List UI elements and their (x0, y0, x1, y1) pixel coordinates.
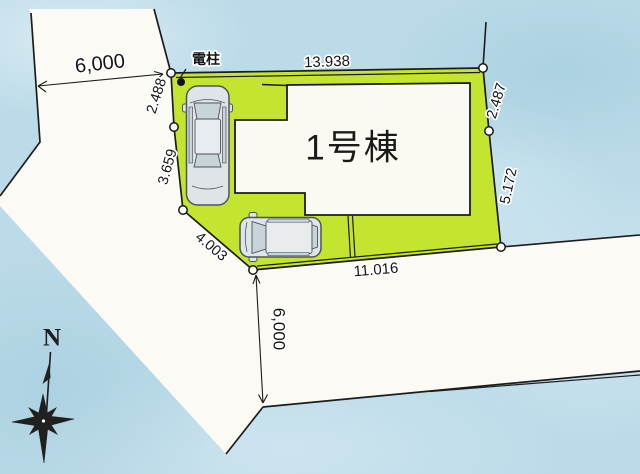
compass-center-dot (42, 419, 45, 422)
compass: N (12, 325, 74, 464)
car-wagon (240, 213, 321, 262)
vertex-marker (479, 64, 487, 72)
sedan-roof (195, 119, 221, 154)
wagon-rear-window (312, 225, 318, 249)
sedan-windshield (194, 103, 221, 119)
sedan-side-window-left (189, 107, 193, 163)
car-sedan (183, 86, 233, 205)
vertex-marker (497, 243, 505, 251)
utility-pole-dot (177, 78, 185, 86)
wagon-side-window-bottom (268, 253, 309, 256)
wagon-windshield (252, 222, 266, 254)
wagon-side-window-top (268, 219, 309, 222)
building-label: 1号棟 (305, 129, 400, 168)
site-plan: 1号棟 (0, 0, 640, 474)
wagon-roof (266, 221, 312, 254)
sedan-side-window-right (223, 107, 227, 163)
vertex-marker (167, 69, 175, 77)
vertex-marker (249, 266, 257, 274)
vertex-marker (170, 123, 178, 131)
dim-lot-east-upper: 2.487 (484, 81, 510, 120)
vertex-marker (485, 127, 493, 135)
vertex-marker (179, 206, 187, 214)
building-eave-line (262, 85, 287, 86)
sedan-rear-window (194, 154, 221, 167)
dim-lot-east-lower: 5.172 (497, 167, 520, 206)
north-label: N (43, 325, 61, 352)
pole-label: 電柱 (192, 51, 220, 67)
compass-star-cardinal (12, 394, 74, 463)
site-plan-drawing: 1号棟 (0, 0, 640, 474)
dim-road-south: 6,000 (270, 308, 289, 351)
north-neighbor-boundary (483, 22, 486, 68)
dim-lot-north: 13.938 (304, 53, 350, 72)
